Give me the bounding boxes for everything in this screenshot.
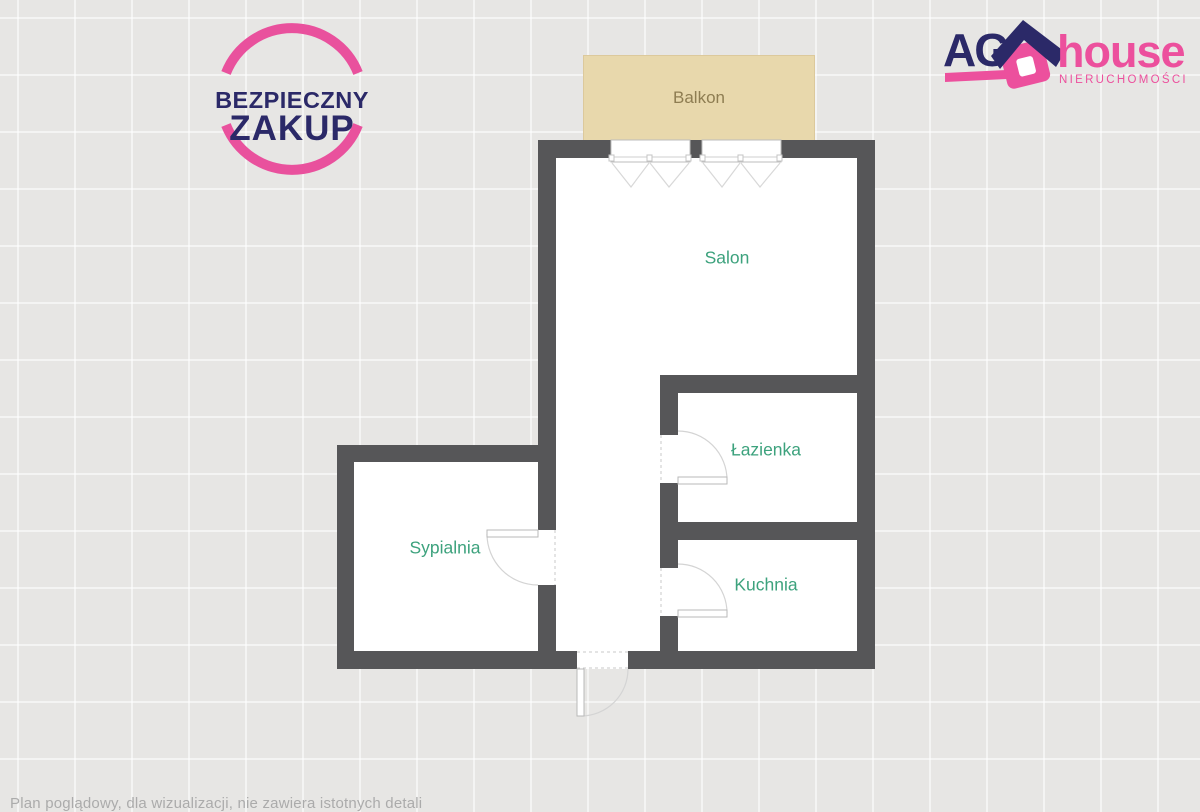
floorplan-page: { "page": { "background": "#e7e6e4", "wa…: [0, 0, 1200, 807]
room-balkon: Balkon: [583, 55, 815, 141]
room-corridor: [556, 375, 660, 651]
wall-salon-left: [538, 140, 556, 669]
agency-subtitle: NIERUCHOMOŚCI: [1059, 73, 1188, 86]
wall-divider-vertical: [660, 375, 678, 669]
room-label-kuchnia: Kuchnia: [734, 575, 797, 596]
wall-bottom: [337, 651, 875, 669]
wall-right: [857, 140, 875, 669]
wall-top: [538, 140, 875, 158]
room-label-balkon: Balkon: [673, 88, 725, 108]
wall-sypialnia-top: [337, 445, 556, 462]
wall-sypialnia-left: [337, 445, 354, 669]
room-label-salon: Salon: [705, 248, 750, 269]
stamp-line2: ZAKUP: [229, 109, 355, 148]
room-label-sypialnia: Sypialnia: [409, 538, 480, 559]
room-label-lazienka: Łazienka: [731, 440, 801, 461]
wall-lazienka-top: [660, 375, 875, 393]
agency-name-accent: house: [1057, 26, 1185, 77]
room-kuchnia: [678, 540, 857, 651]
bezpieczny-zakup-badge: BEZPIECZNY ZAKUP: [205, 12, 380, 187]
disclaimer-text: Plan poglądowy, dla wizualizacji, nie za…: [10, 795, 710, 812]
wall-lazienka-bottom: [678, 522, 875, 540]
agency-logo: AG house NIERUCHOMOŚCI: [935, 12, 1195, 92]
